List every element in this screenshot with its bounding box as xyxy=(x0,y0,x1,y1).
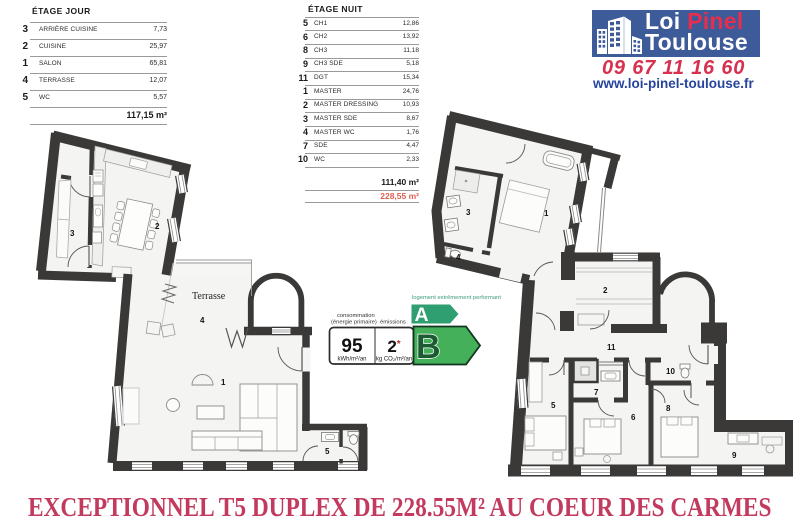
svg-text:B: B xyxy=(416,328,441,366)
svg-text:4: 4 xyxy=(200,316,205,325)
svg-text:5: 5 xyxy=(325,447,330,456)
svg-text:6: 6 xyxy=(631,413,636,422)
svg-text:95: 95 xyxy=(341,336,363,357)
svg-text:A: A xyxy=(415,304,429,326)
svg-text:11: 11 xyxy=(607,343,616,352)
svg-text:8: 8 xyxy=(666,404,671,413)
svg-text:4: 4 xyxy=(456,253,461,262)
svg-text:2: 2 xyxy=(603,286,608,295)
svg-text:(énergie primaire): (énergie primaire) xyxy=(331,320,377,326)
svg-text:7: 7 xyxy=(594,388,599,397)
svg-text:3: 3 xyxy=(70,229,75,238)
svg-text:1: 1 xyxy=(221,378,226,387)
svg-text:5: 5 xyxy=(551,401,556,410)
svg-text:9: 9 xyxy=(732,451,737,460)
svg-text:2: 2 xyxy=(155,222,160,231)
svg-text:kWh/m²/an: kWh/m²/an xyxy=(337,357,366,363)
svg-text:3: 3 xyxy=(466,208,471,217)
svg-text:1: 1 xyxy=(544,209,549,218)
svg-text:logement extrêmement performan: logement extrêmement performant xyxy=(412,295,501,301)
svg-text:10: 10 xyxy=(666,367,675,376)
svg-text:Terrasse: Terrasse xyxy=(192,291,226,302)
svg-text:kg CO₂/m²/an: kg CO₂/m²/an xyxy=(376,357,412,363)
svg-text:consommation: consommation xyxy=(337,313,375,319)
svg-text:émissions: émissions xyxy=(380,320,406,326)
